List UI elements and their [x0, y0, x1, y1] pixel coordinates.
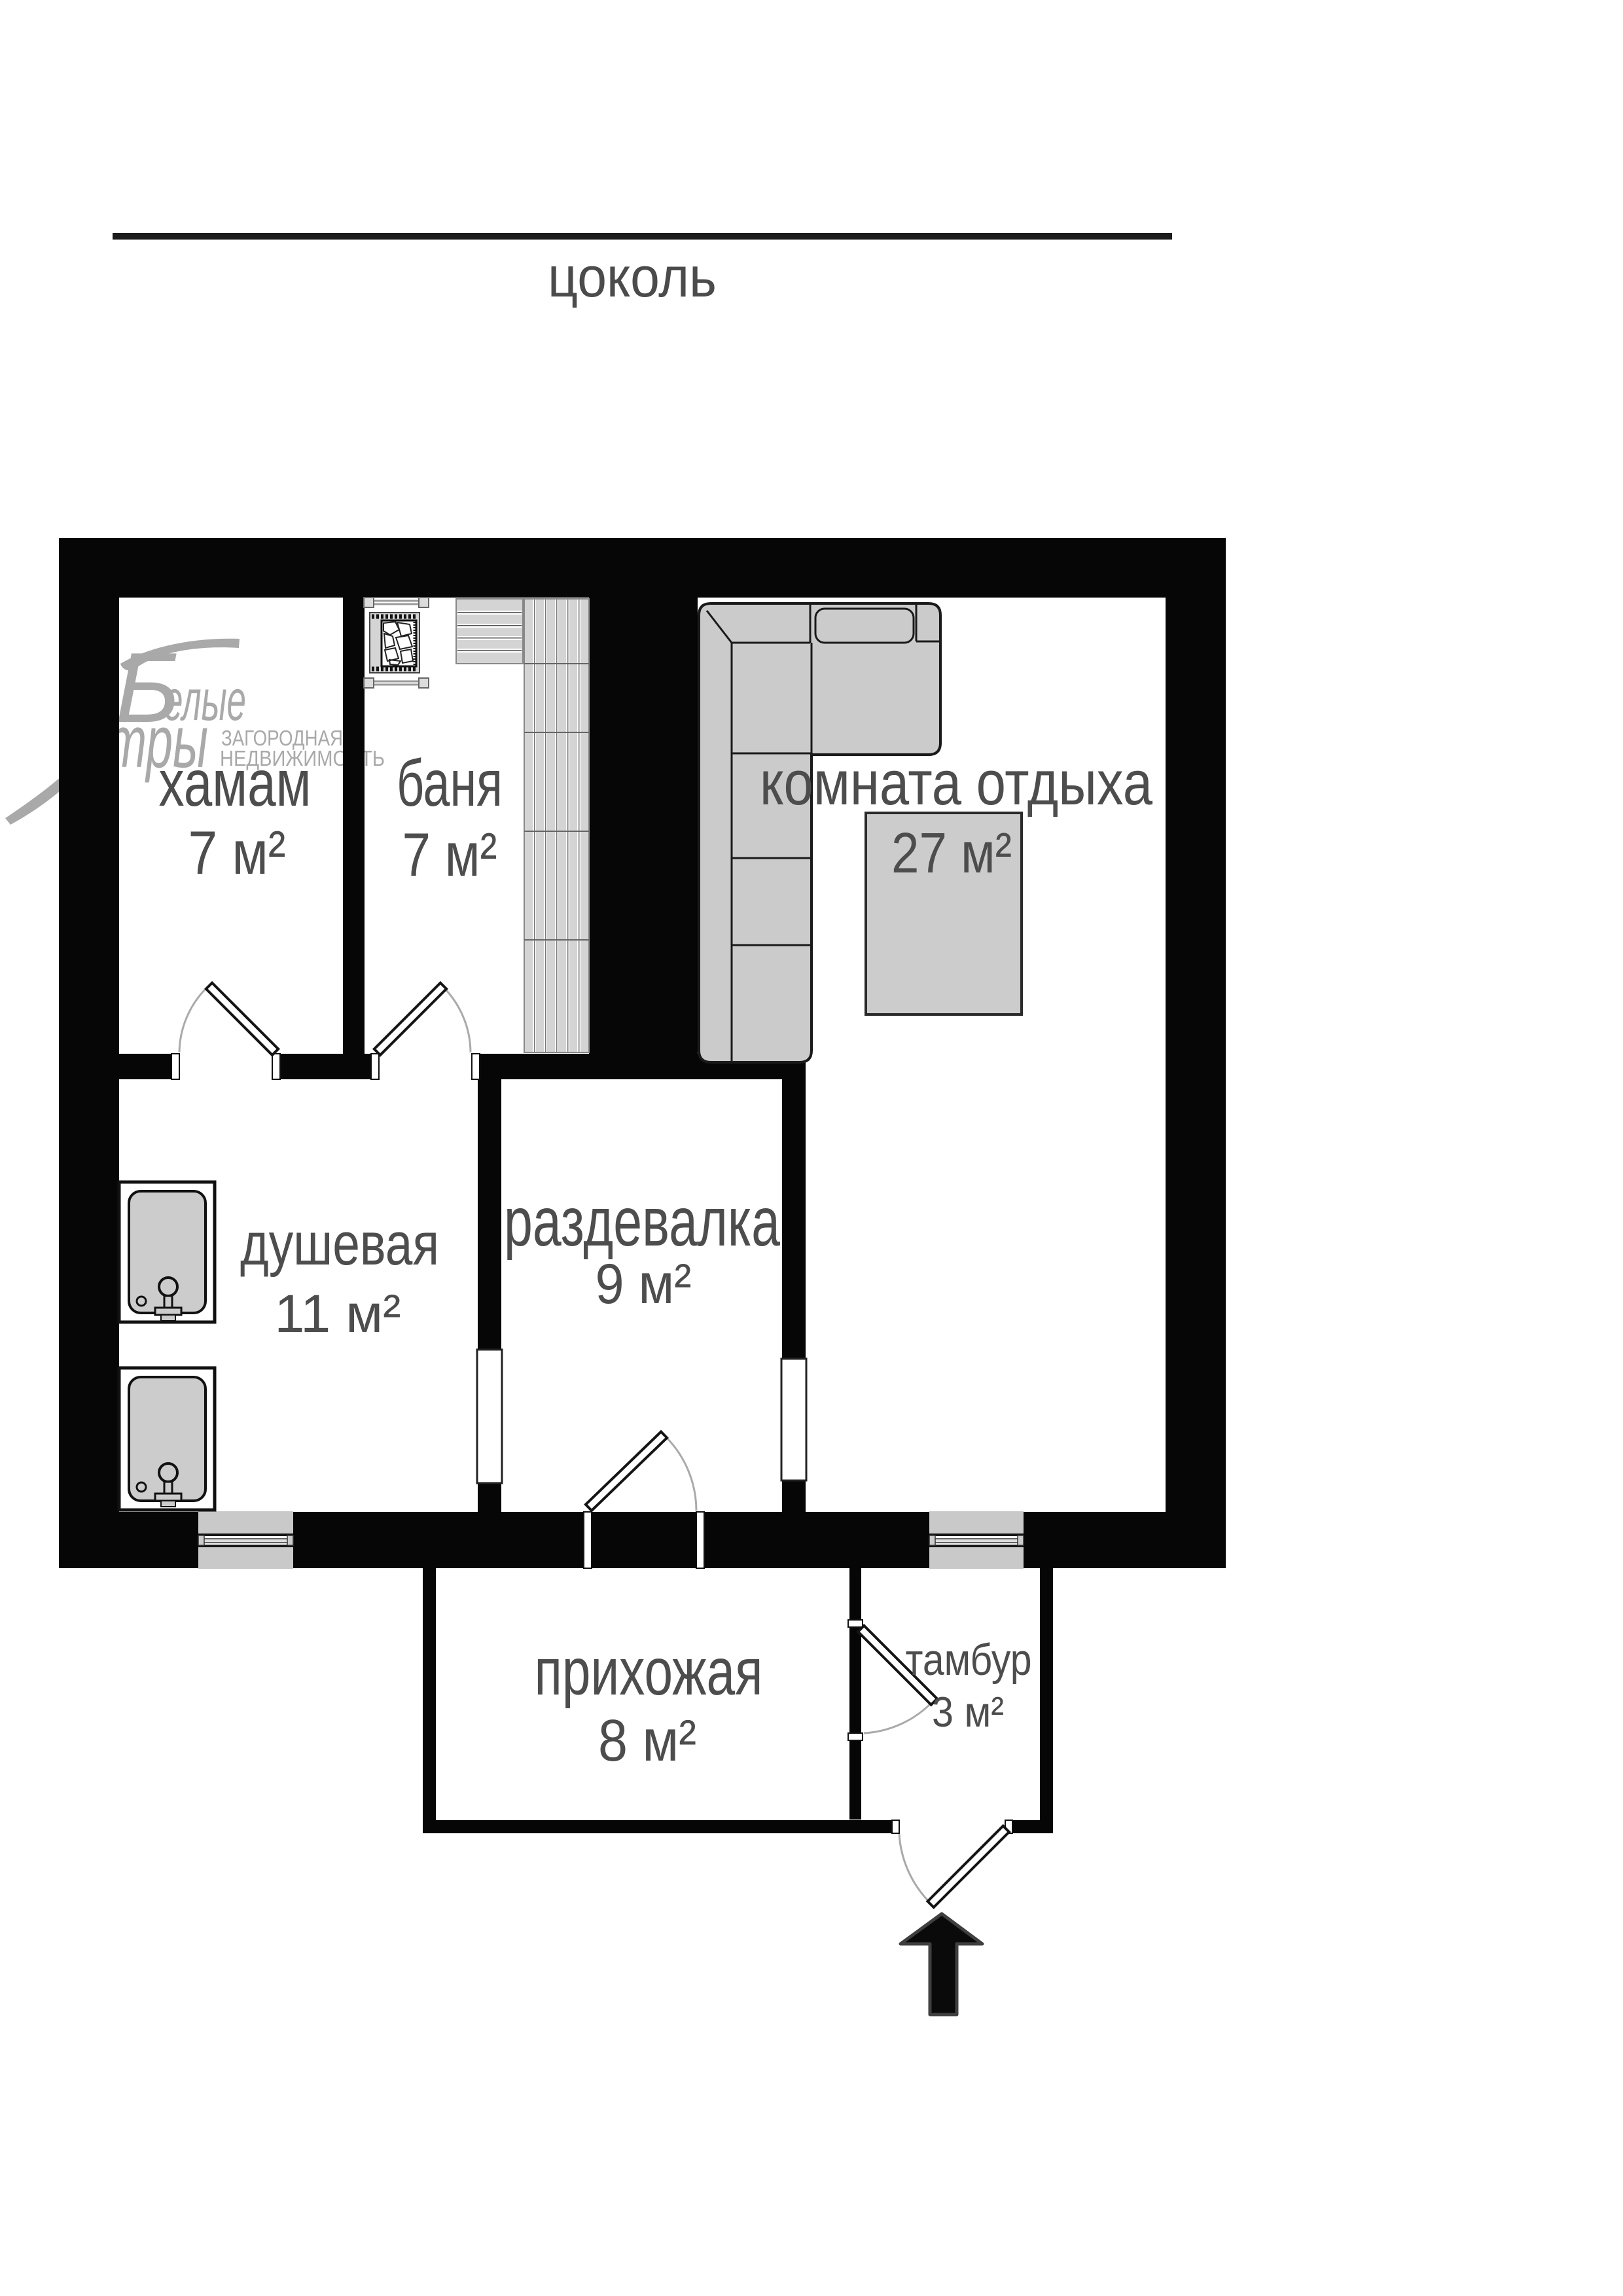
svg-text:9 м²: 9 м²	[596, 1253, 692, 1316]
svg-text:8 м²: 8 м²	[598, 1708, 696, 1774]
svg-text:хамам: хамам	[159, 747, 312, 820]
svg-text:комната отдыха: комната отдыха	[760, 748, 1153, 818]
svg-text:тамбур: тамбур	[906, 1635, 1032, 1685]
svg-text:баня: баня	[397, 747, 503, 820]
svg-text:7 м²: 7 м²	[188, 818, 286, 887]
svg-text:цоколь: цоколь	[548, 246, 717, 309]
svg-text:27 м²: 27 м²	[891, 821, 1012, 885]
svg-text:11 м²: 11 м²	[275, 1284, 401, 1344]
svg-text:душевая: душевая	[240, 1211, 439, 1278]
svg-text:прихожая: прихожая	[535, 1634, 763, 1709]
svg-text:раздевалка: раздевалка	[504, 1183, 780, 1261]
svg-text:7 м²: 7 м²	[402, 820, 497, 889]
svg-text:3 м²: 3 м²	[932, 1688, 1004, 1736]
